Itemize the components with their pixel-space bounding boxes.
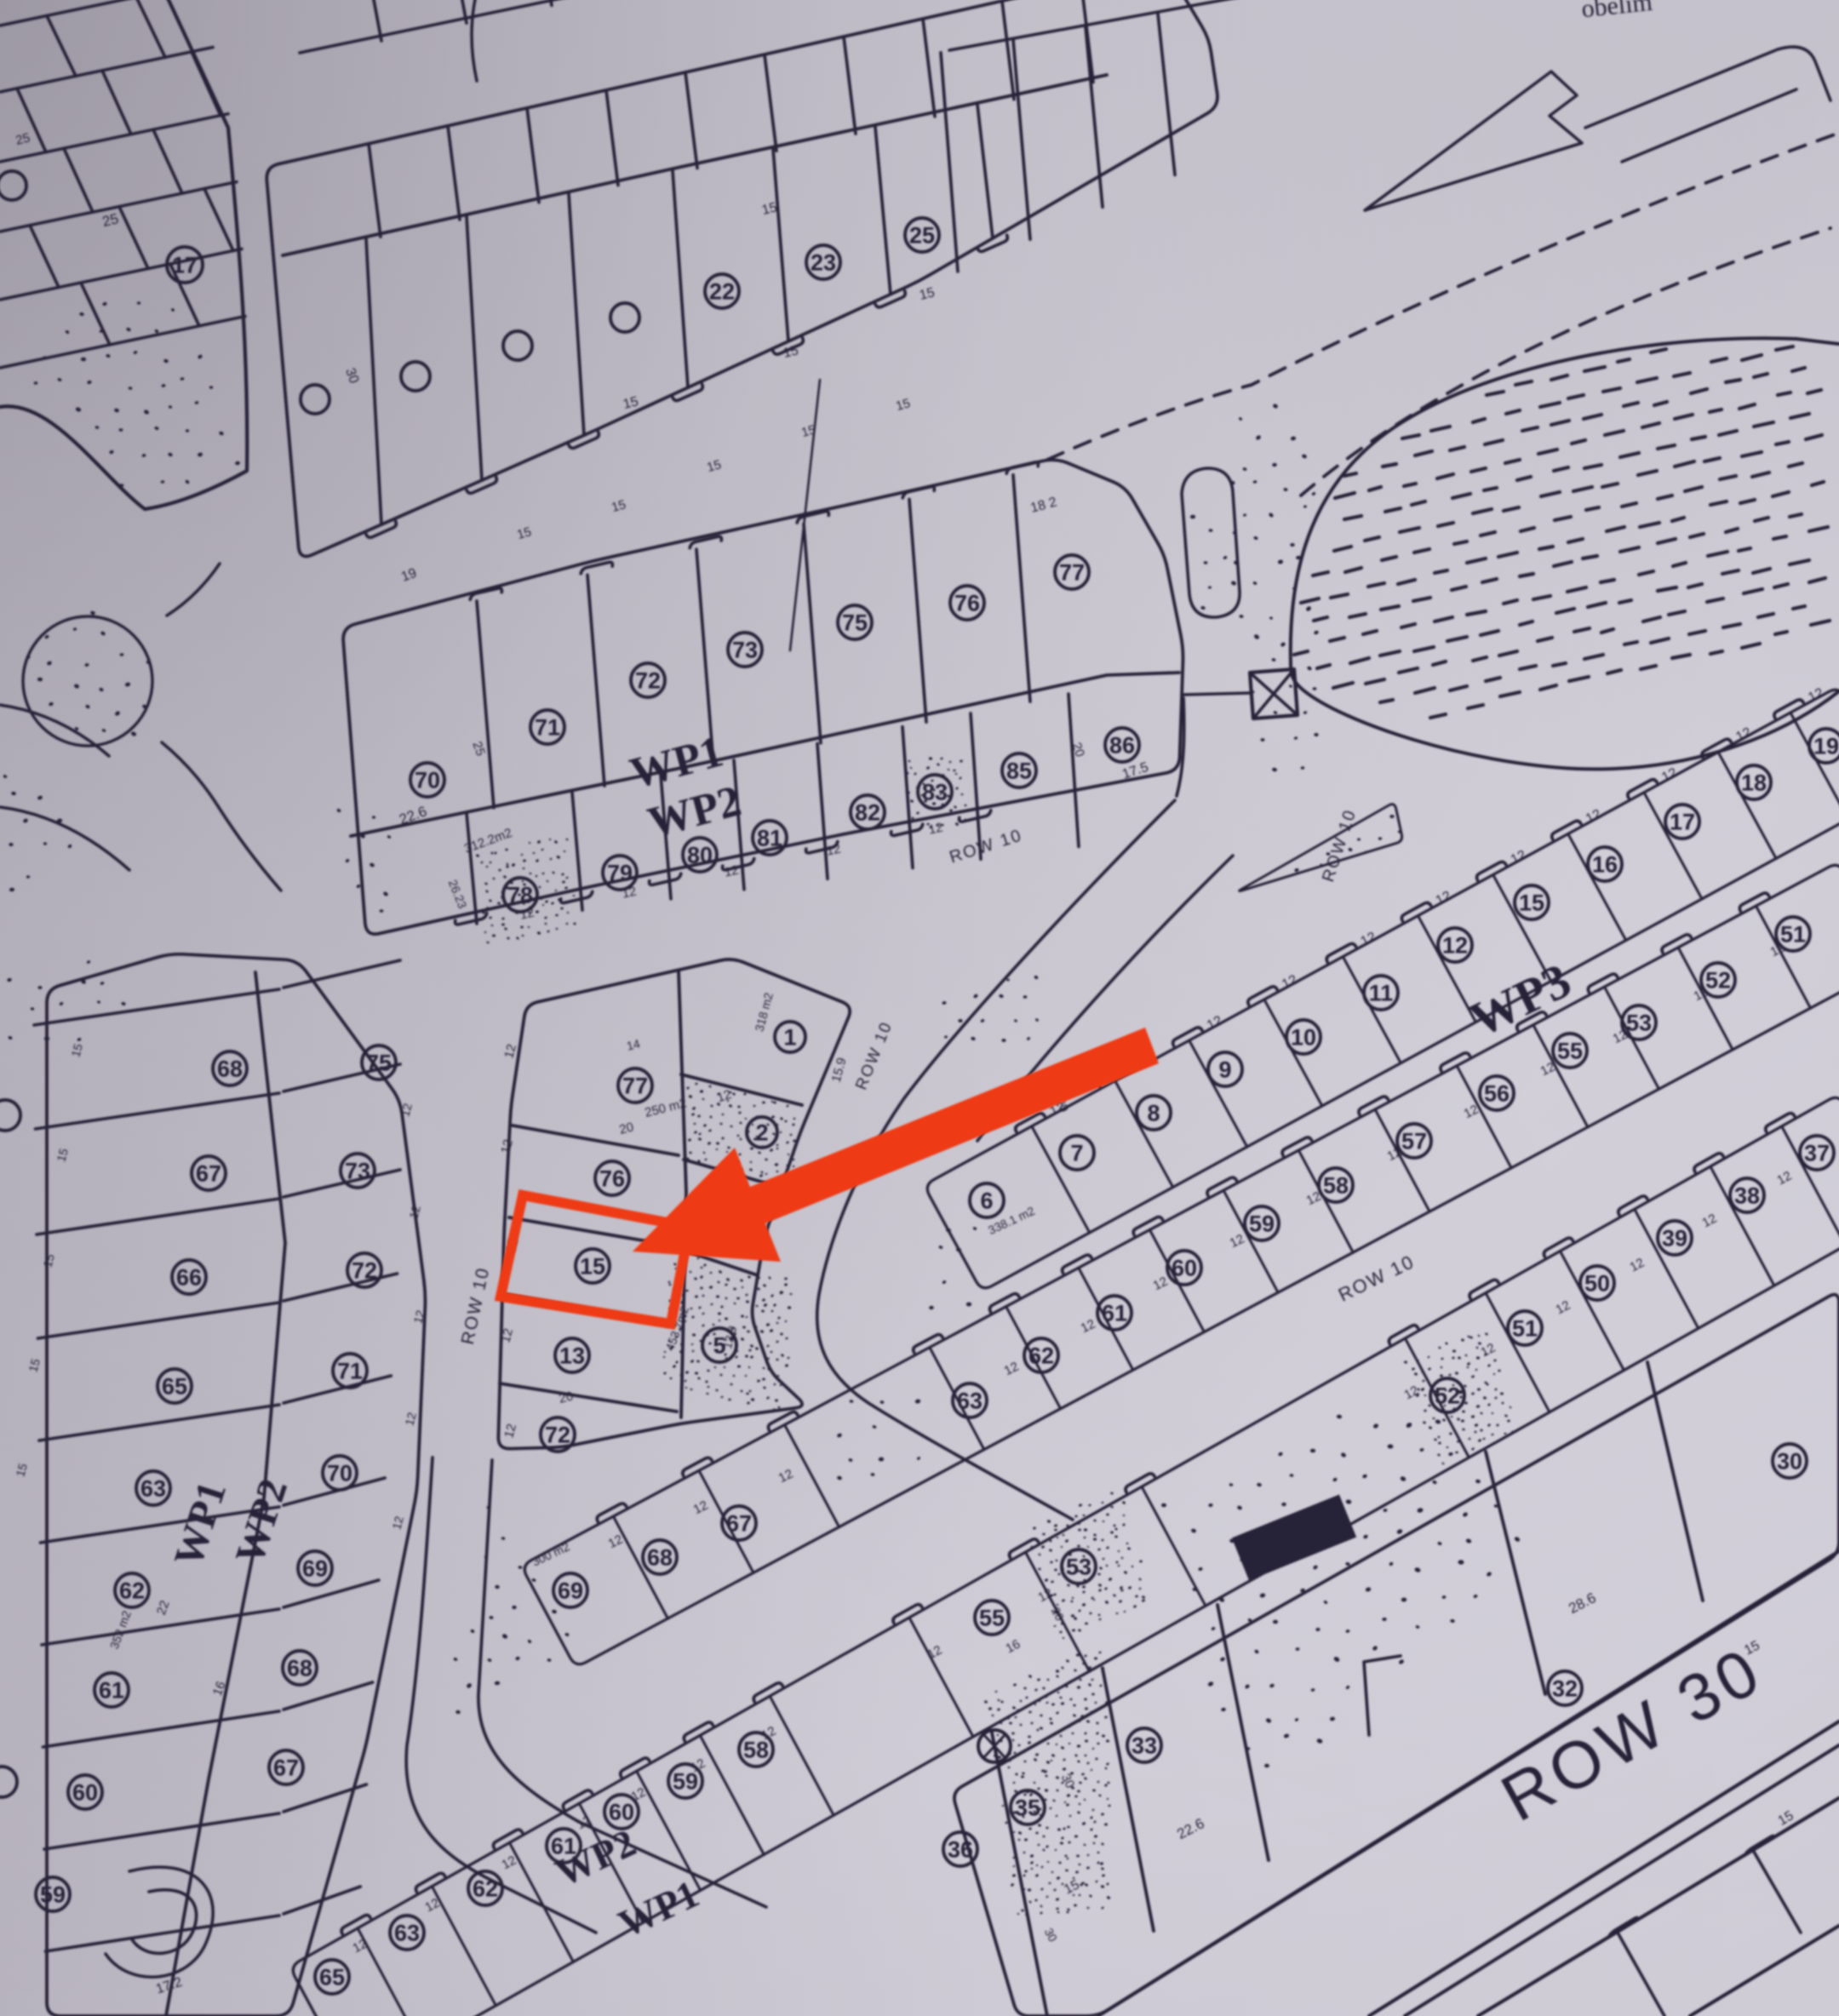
svg-text:72: 72 (635, 667, 661, 693)
svg-text:75: 75 (366, 1050, 392, 1075)
svg-text:12: 12 (621, 885, 638, 902)
svg-text:55: 55 (1557, 1038, 1583, 1063)
svg-text:60: 60 (1172, 1255, 1197, 1280)
svg-text:8: 8 (1147, 1100, 1160, 1125)
svg-text:13: 13 (559, 1343, 585, 1368)
svg-text:15: 15 (580, 1253, 605, 1279)
svg-text:86: 86 (1109, 732, 1135, 758)
svg-text:12: 12 (825, 842, 842, 859)
svg-text:9: 9 (1218, 1057, 1231, 1082)
svg-text:73: 73 (345, 1158, 370, 1183)
svg-text:66: 66 (176, 1264, 202, 1290)
svg-text:71: 71 (337, 1358, 363, 1383)
svg-text:81: 81 (757, 825, 782, 850)
svg-text:52: 52 (1435, 1383, 1460, 1408)
svg-text:16: 16 (1592, 851, 1618, 877)
svg-text:60: 60 (72, 1779, 98, 1805)
svg-text:69: 69 (558, 1578, 583, 1603)
svg-text:50: 50 (1584, 1270, 1610, 1296)
svg-text:2: 2 (755, 1120, 768, 1145)
svg-text:63: 63 (140, 1475, 166, 1501)
svg-text:85: 85 (1006, 758, 1032, 783)
svg-text:65: 65 (319, 1964, 345, 1990)
svg-text:53: 53 (1626, 1010, 1652, 1035)
svg-text:68: 68 (217, 1056, 243, 1081)
svg-text:12: 12 (723, 863, 740, 880)
svg-text:77: 77 (622, 1073, 648, 1098)
svg-text:72: 72 (545, 1422, 570, 1447)
svg-text:58: 58 (1323, 1172, 1349, 1198)
svg-text:62: 62 (119, 1578, 145, 1603)
svg-text:67: 67 (726, 1510, 752, 1536)
svg-text:53: 53 (1066, 1554, 1091, 1579)
svg-text:38: 38 (1734, 1183, 1760, 1208)
svg-text:19: 19 (1813, 733, 1839, 759)
svg-text:67: 67 (273, 1755, 299, 1780)
svg-text:65: 65 (162, 1373, 187, 1399)
svg-text:18: 18 (1741, 770, 1767, 795)
svg-text:73: 73 (732, 637, 758, 662)
svg-text:35: 35 (1015, 1795, 1040, 1820)
svg-text:12: 12 (1442, 932, 1468, 958)
svg-text:1: 1 (783, 1024, 796, 1050)
svg-text:25: 25 (909, 222, 935, 248)
svg-text:39: 39 (1662, 1225, 1687, 1251)
svg-text:63: 63 (957, 1388, 983, 1413)
svg-text:12: 12 (927, 821, 944, 838)
svg-text:79: 79 (607, 860, 633, 885)
svg-text:51: 51 (1512, 1315, 1538, 1341)
svg-text:61: 61 (1102, 1300, 1127, 1326)
svg-text:68: 68 (287, 1655, 312, 1681)
svg-text:52: 52 (1705, 967, 1731, 993)
svg-text:37: 37 (1804, 1140, 1830, 1165)
svg-text:76: 76 (954, 590, 980, 616)
svg-text:23: 23 (811, 249, 836, 275)
svg-text:80: 80 (687, 842, 713, 868)
svg-text:59: 59 (40, 1881, 66, 1907)
svg-text:83: 83 (922, 779, 948, 805)
svg-text:77: 77 (1059, 559, 1085, 585)
svg-text:33: 33 (1131, 1732, 1157, 1758)
svg-text:67: 67 (196, 1160, 221, 1186)
svg-text:17: 17 (172, 252, 198, 278)
svg-text:70: 70 (327, 1460, 352, 1486)
svg-text:30: 30 (1777, 1448, 1802, 1474)
svg-text:78: 78 (507, 882, 533, 908)
svg-text:75: 75 (842, 610, 868, 635)
svg-text:17: 17 (1670, 809, 1695, 834)
svg-text:71: 71 (535, 714, 560, 740)
svg-text:11: 11 (1369, 980, 1394, 1005)
svg-text:10: 10 (1291, 1024, 1316, 1050)
svg-text:51: 51 (1780, 921, 1806, 947)
svg-text:63: 63 (394, 1920, 420, 1945)
svg-text:12: 12 (518, 906, 536, 923)
svg-text:62: 62 (1028, 1343, 1054, 1368)
svg-text:70: 70 (415, 767, 440, 793)
svg-text:72: 72 (352, 1257, 377, 1283)
svg-text:59: 59 (1249, 1211, 1275, 1236)
svg-text:36: 36 (948, 1836, 973, 1862)
svg-text:68: 68 (647, 1544, 673, 1570)
svg-text:55: 55 (979, 1605, 1005, 1630)
svg-text:22: 22 (709, 278, 735, 304)
svg-text:82: 82 (855, 799, 880, 825)
svg-text:76: 76 (599, 1165, 625, 1191)
svg-text:56: 56 (1484, 1080, 1510, 1106)
svg-text:57: 57 (1401, 1128, 1427, 1154)
svg-text:69: 69 (302, 1555, 328, 1581)
svg-text:6: 6 (980, 1188, 993, 1213)
svg-text:15: 15 (1519, 890, 1544, 915)
svg-text:62: 62 (473, 1876, 498, 1901)
svg-text:7: 7 (1070, 1140, 1083, 1165)
svg-text:61: 61 (99, 1677, 124, 1703)
svg-text:32: 32 (1552, 1675, 1578, 1701)
